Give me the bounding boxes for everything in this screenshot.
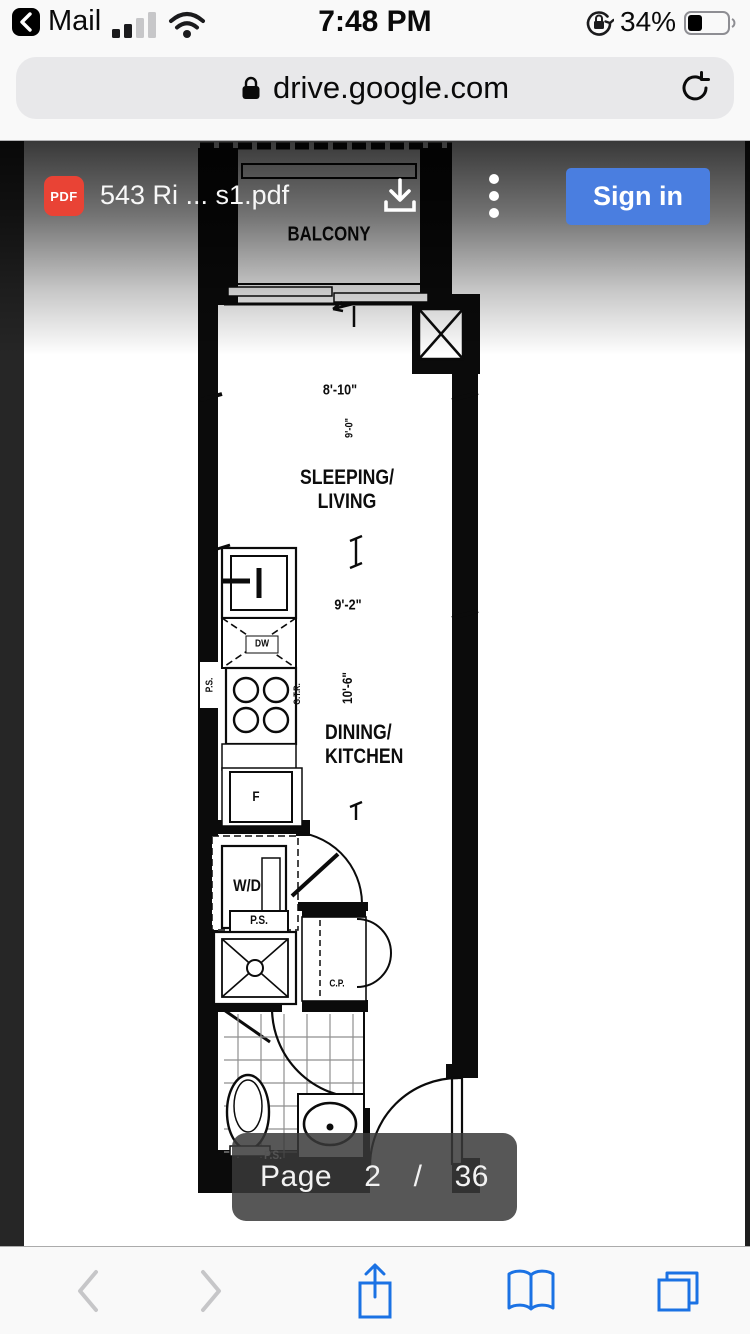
overflow-menu-button[interactable]: [470, 168, 518, 224]
address-bar[interactable]: drive.google.com: [16, 57, 734, 119]
back-app-label[interactable]: Mail: [48, 5, 101, 38]
label-closet: C.P.: [329, 978, 344, 990]
download-button[interactable]: [372, 168, 428, 224]
share-button[interactable]: [330, 1247, 420, 1334]
page-indicator: Page 2 / 36: [232, 1133, 517, 1221]
page-current: 2: [364, 1160, 381, 1194]
safari-toolbar: [0, 1246, 750, 1334]
label-dishwasher: DW: [255, 638, 269, 650]
back-icon: [74, 1268, 102, 1314]
label-fridge: F: [252, 788, 259, 804]
label-dining-kitchen: DINING/ KITCHEN: [325, 721, 403, 769]
download-icon: [378, 174, 422, 218]
sign-in-label: Sign in: [593, 181, 683, 212]
back-to-app-icon: [18, 12, 34, 32]
sign-in-button[interactable]: Sign in: [566, 168, 710, 225]
label-dim-mid-vert: 10'-6": [339, 672, 355, 704]
url-zone: drive.google.com: [0, 45, 750, 141]
reload-icon[interactable]: [678, 70, 714, 106]
bookmarks-button[interactable]: [486, 1247, 576, 1334]
share-icon: [351, 1261, 399, 1321]
back-button[interactable]: [43, 1247, 133, 1334]
lock-icon: [241, 75, 261, 101]
battery-icon: [684, 11, 738, 35]
rotation-lock-icon: [584, 8, 614, 38]
overflow-menu-icon: [487, 172, 501, 220]
clock: 7:48 PM: [275, 5, 475, 39]
status-bar: Mail 7:48 PM 34%: [0, 0, 750, 45]
forward-button[interactable]: [166, 1247, 256, 1334]
label-washer-dryer: W/D: [233, 876, 261, 896]
label-dim-top: 8'-10": [323, 381, 357, 398]
tabs-button[interactable]: [633, 1247, 723, 1334]
label-sleeping-living: SLEEPING/ LIVING: [300, 466, 394, 514]
tabs-icon: [654, 1267, 702, 1315]
label-dim-top-vert: 9'-0": [344, 418, 357, 438]
back-to-app-button[interactable]: [12, 8, 40, 36]
label-dim-mid: 9'-2": [334, 596, 361, 613]
page-separator: /: [414, 1160, 423, 1194]
pdf-icon-label: PDF: [50, 189, 78, 204]
page-indicator-label: Page: [260, 1160, 332, 1194]
cellular-signal-icon: [112, 12, 158, 38]
pdf-icon: PDF: [44, 176, 84, 216]
bookmarks-icon: [504, 1268, 558, 1314]
document-title: 543 Ri ... s1.pdf: [100, 180, 289, 211]
wifi-icon: [168, 11, 206, 39]
iphone-screen: BALCONY 8'-10" 9'-0" SLEEPING/ LIVING 9'…: [0, 0, 750, 1334]
label-gas-range: G.T.R.: [292, 683, 302, 704]
label-pipe-shaft-kitchen: P.S.: [204, 678, 216, 693]
battery-percent: 34%: [620, 6, 676, 38]
forward-icon: [197, 1268, 225, 1314]
url-text: drive.google.com: [273, 70, 509, 106]
page-total: 36: [455, 1160, 489, 1194]
label-pipe-shaft-mid: P.S.: [250, 914, 268, 928]
